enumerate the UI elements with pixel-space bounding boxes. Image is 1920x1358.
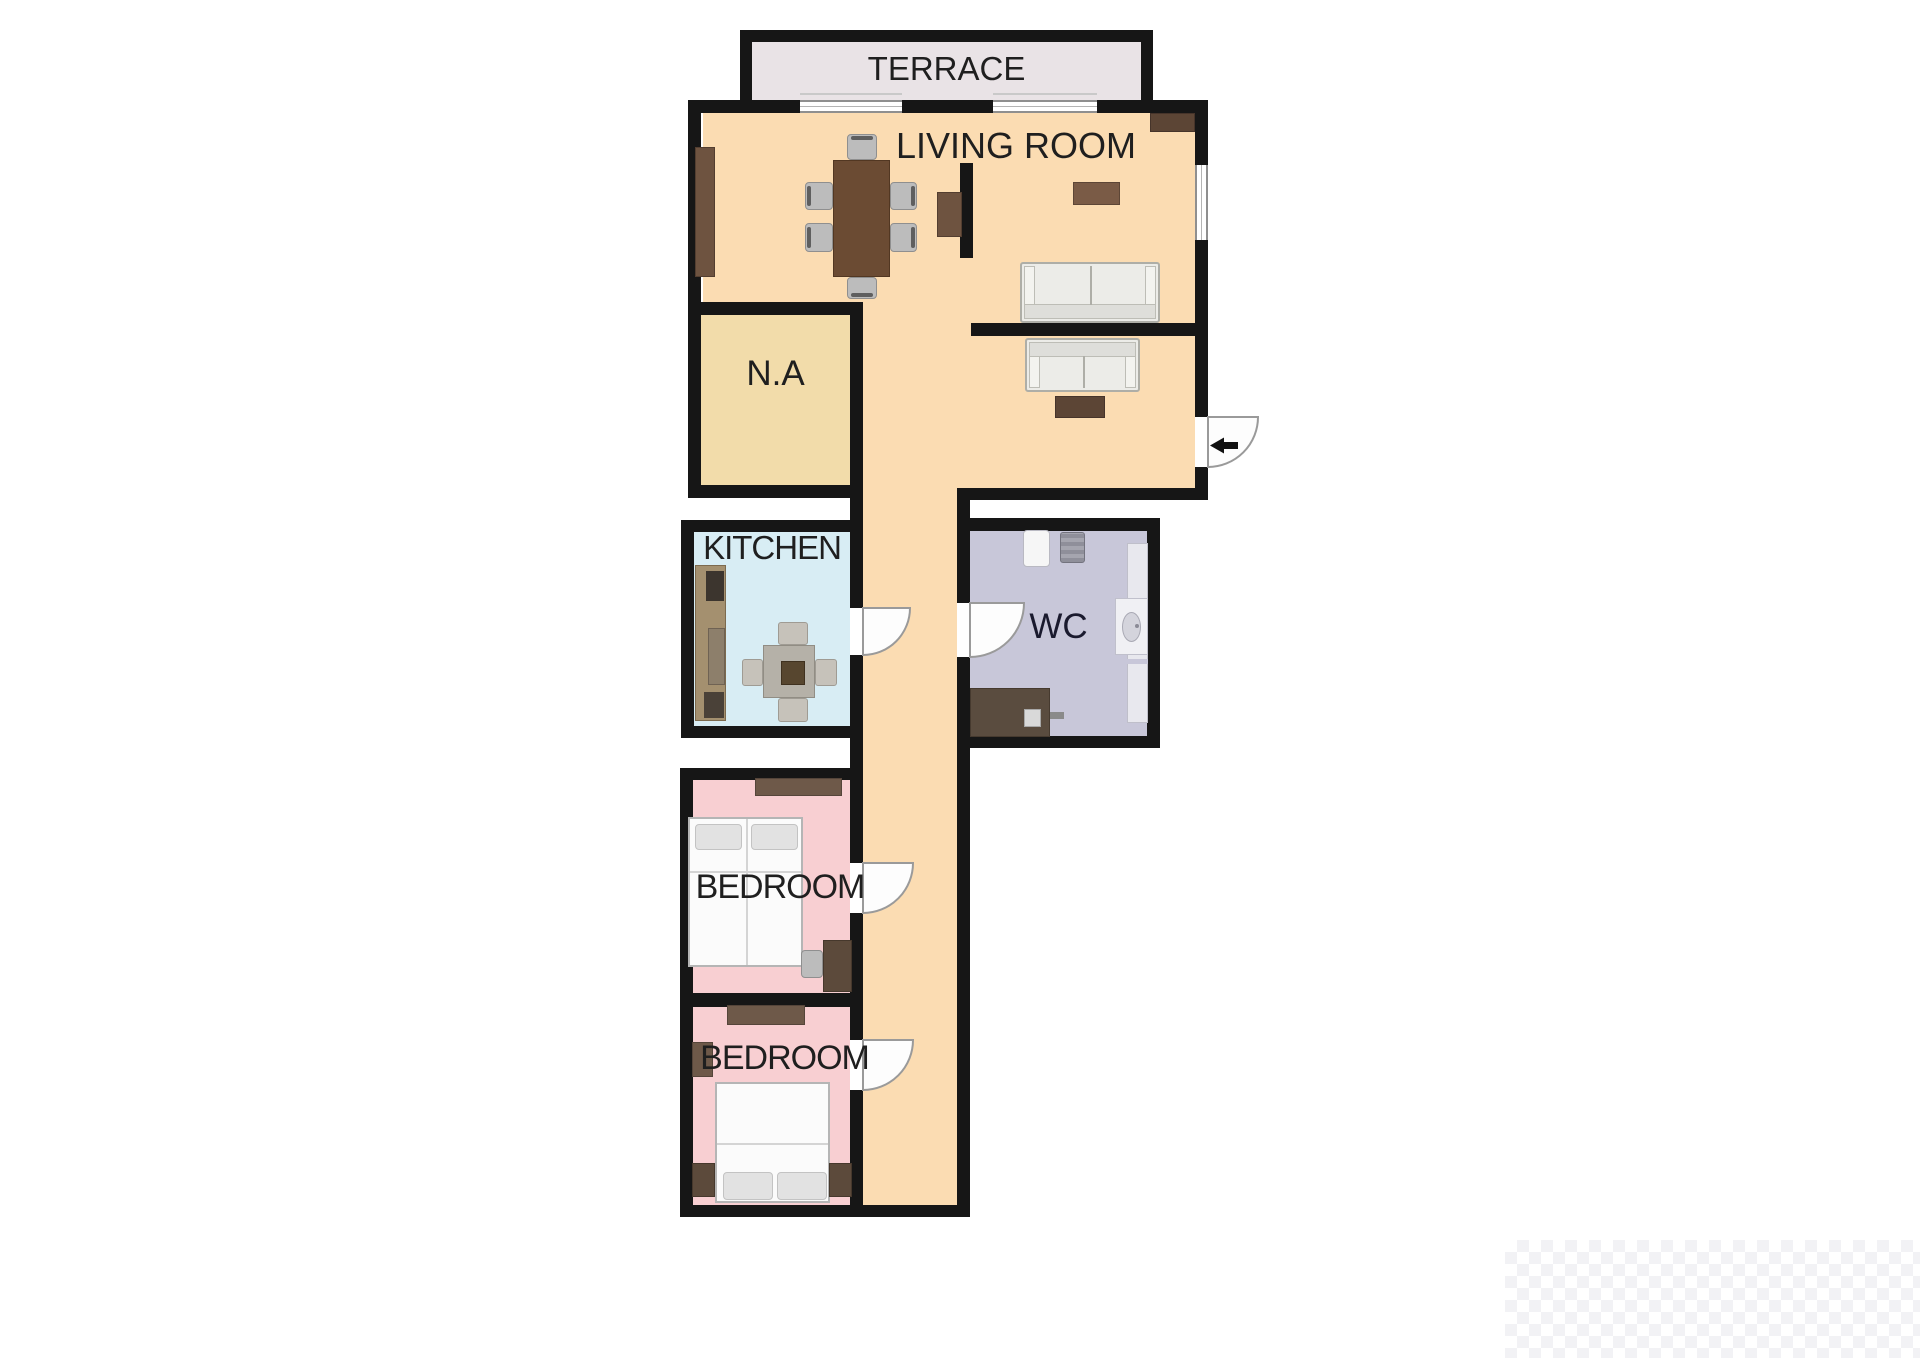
washing-machine [1023,530,1050,567]
texture-watermark [1505,1240,1920,1358]
kitchen-chair [742,659,763,686]
kitchen-chair [815,659,837,686]
room-label-bedroom1: BEDROOM [680,870,880,904]
top-wall [688,100,800,113]
wc-bottom-wall [957,736,1160,748]
dining-chair [805,182,833,210]
kitchen-table [763,645,815,698]
kitchen-chair [778,698,808,722]
terrace-left-wall [740,30,752,102]
kitchen-bottom-wall [681,726,855,738]
top-wall [902,100,993,113]
room-label-wc: WC [970,609,1147,644]
kitchen-door-opening [850,608,863,655]
living-room-bottom-wall [957,488,1208,500]
top-wall [1097,100,1208,113]
window-sill [800,93,902,95]
wc-top-wall [957,518,1160,531]
coffee-table [1055,396,1105,418]
na-bottom-wall [688,485,863,498]
sofa [1025,338,1140,392]
dining-chair [890,182,917,210]
room-label-bedroom2: BEDROOM [682,1041,887,1075]
terrace-window [800,100,902,113]
interior-wall [971,323,1195,336]
wc-door-opening [957,603,970,657]
floor-plan: TERRACE LIVING ROOM N.A KITCHEN WC BEDRO… [0,0,1920,1358]
bedroom-shelf [727,1005,805,1025]
terrace-window [993,100,1097,113]
dining-chair [847,277,877,299]
room-label-terrace: TERRACE [752,52,1141,85]
dining-chair [805,223,833,252]
right-wall [1195,100,1208,165]
vanity-arm [1050,712,1064,719]
tv-unit [937,192,962,237]
room-label-living-room: LIVING ROOM [866,128,1166,164]
sideboard [695,147,715,277]
corridor-right-wall [957,488,970,603]
dining-chair [890,223,917,252]
corridor-left-wall [850,1090,863,1217]
wc-right-wall [1147,518,1160,748]
bedroom-shelf [755,778,842,796]
entry-arrow-icon [1210,437,1240,454]
vanity [970,688,1050,737]
kitchen-chair [778,622,808,645]
double-bed [715,1082,830,1203]
wall-shelf [1073,182,1120,205]
na-area [701,315,850,485]
kitchen-door-arc [863,608,915,660]
bedroom-chair [801,950,823,978]
window-sill [993,93,1097,95]
nightstand [823,940,852,992]
corridor-left-wall [850,655,863,863]
wc-appliance [1060,532,1085,563]
plan-bottom-wall [680,1205,970,1217]
nightstand [692,1163,715,1197]
na-top-wall [688,302,863,315]
room-label-kitchen: KITCHEN [686,531,858,564]
kitchen-counter [695,565,726,721]
dining-table [833,160,890,277]
nightstand [829,1163,852,1197]
entry-door-opening [1195,417,1208,467]
terrace-top-wall [740,30,1153,42]
corridor-area [863,488,957,1205]
right-wall [1195,240,1208,417]
room-label-na: N.A [701,356,850,391]
terrace-right-wall [1141,30,1153,102]
living-room-window [1195,165,1208,240]
sofa [1020,262,1160,323]
